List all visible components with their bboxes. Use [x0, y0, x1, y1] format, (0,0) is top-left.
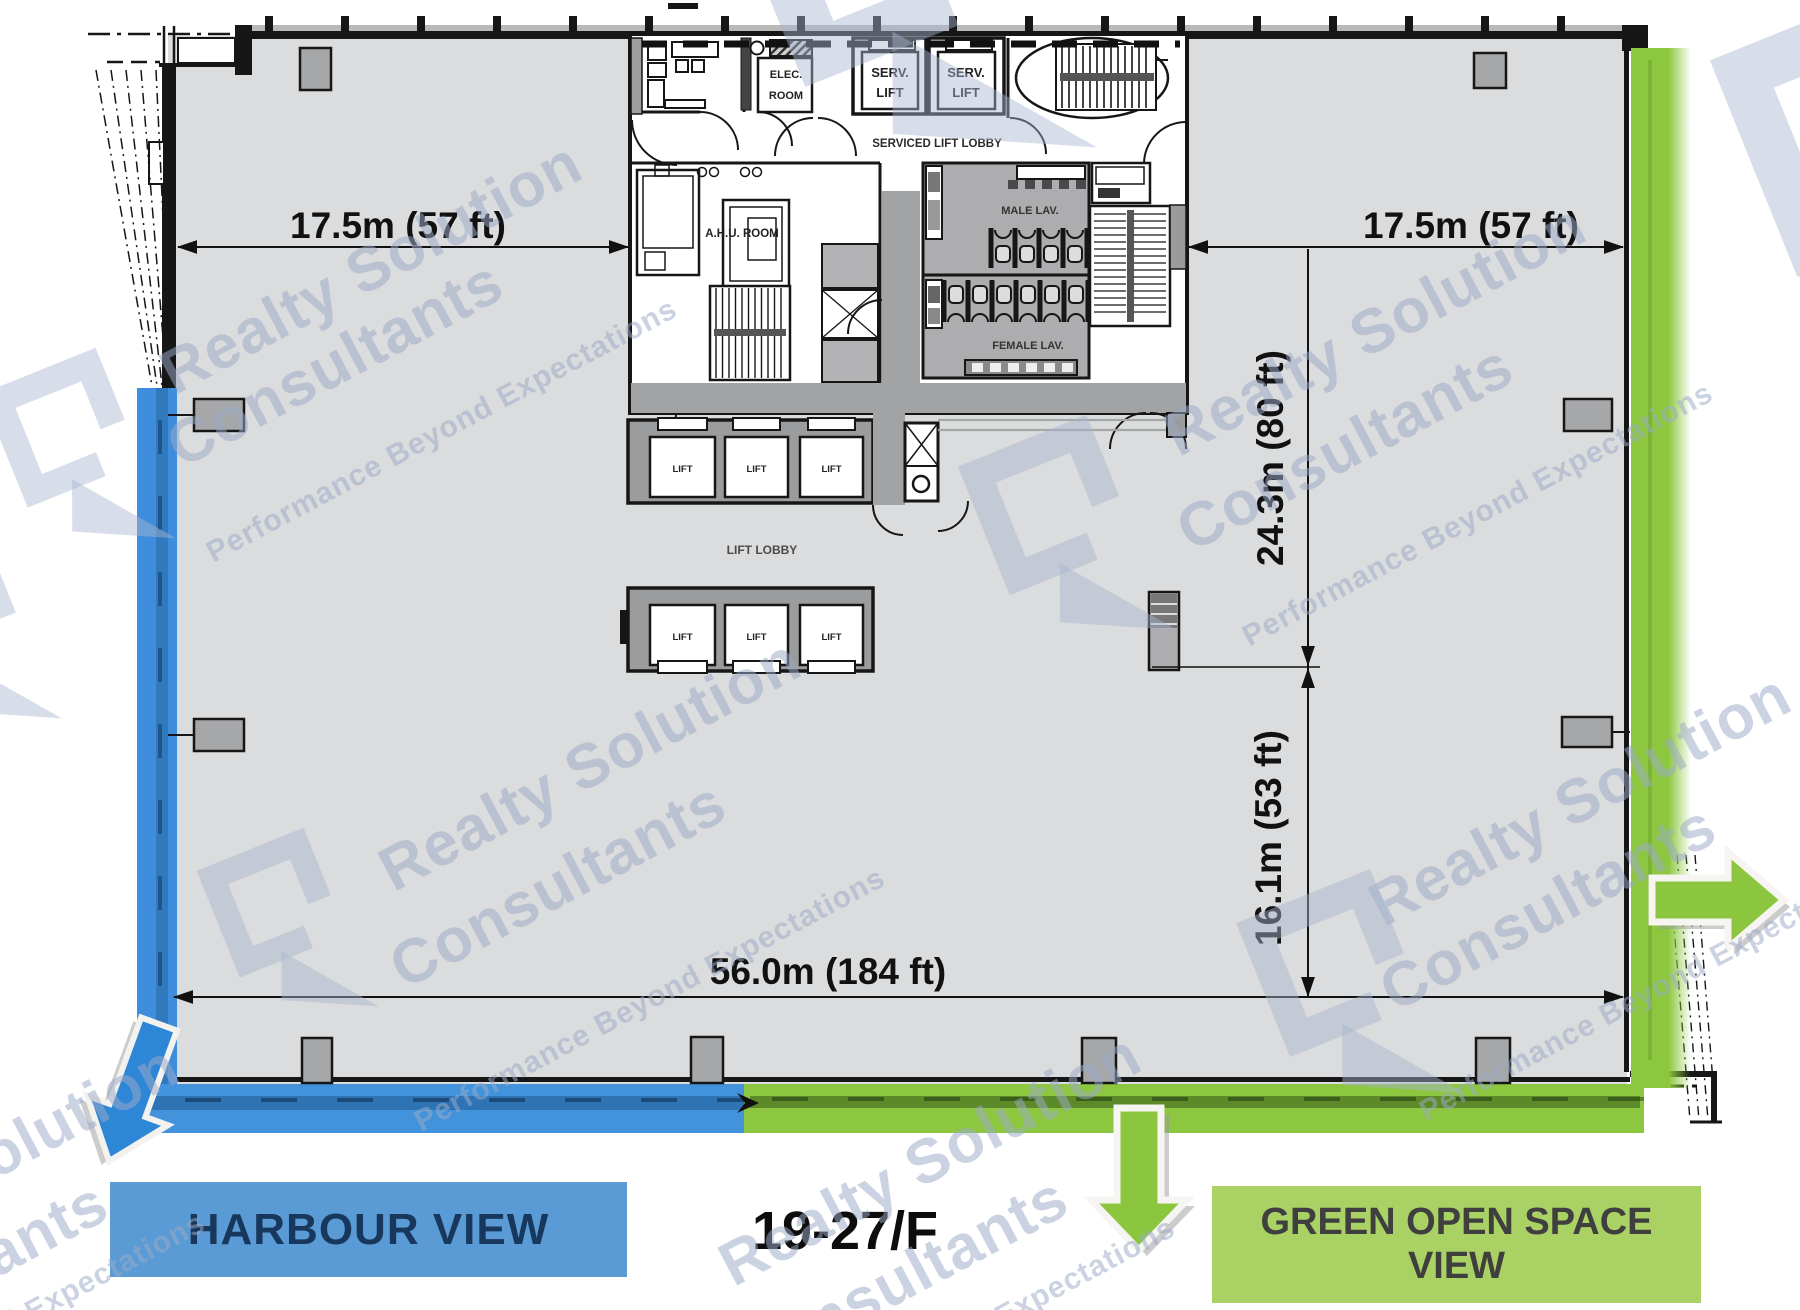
svg-text:LIFT: LIFT	[821, 464, 841, 475]
svg-text:LIFT: LIFT	[821, 632, 841, 643]
svg-text:LIFT LOBBY: LIFT LOBBY	[727, 543, 798, 557]
svg-text:LIFT: LIFT	[746, 464, 766, 475]
svg-text:LIFT: LIFT	[672, 632, 692, 643]
svg-text:LIFT: LIFT	[672, 464, 692, 475]
